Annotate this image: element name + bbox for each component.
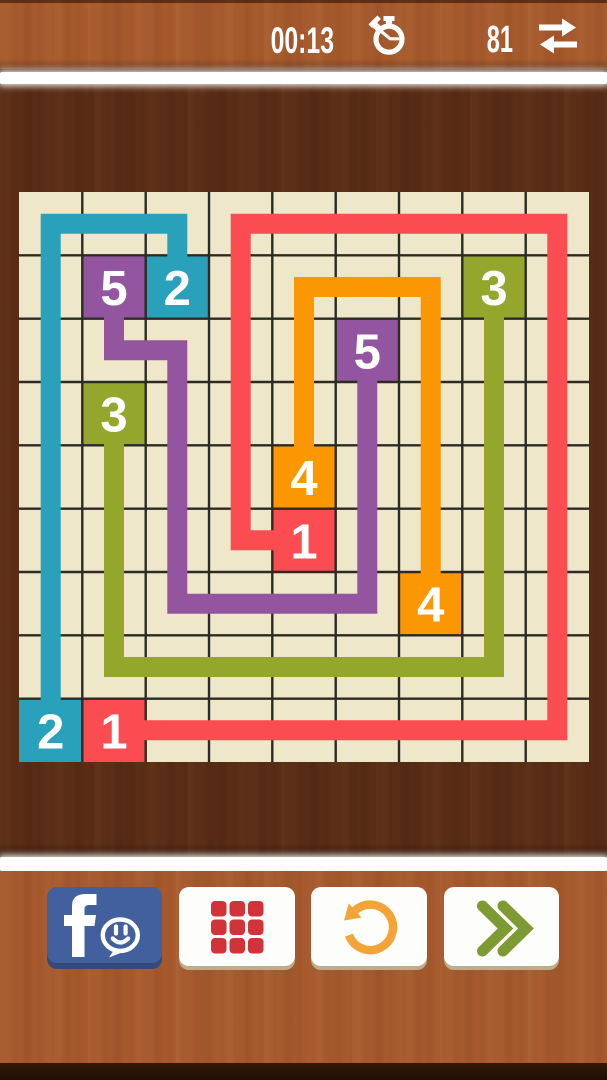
svg-text:2: 2 bbox=[163, 261, 190, 315]
svg-text:4: 4 bbox=[290, 452, 317, 506]
svg-text:4: 4 bbox=[417, 578, 444, 632]
svg-text:5: 5 bbox=[100, 261, 127, 315]
svg-text:3: 3 bbox=[480, 261, 507, 315]
svg-text:2: 2 bbox=[37, 705, 64, 759]
svg-text:5: 5 bbox=[353, 325, 380, 379]
svg-text:1: 1 bbox=[100, 705, 127, 759]
svg-text:1: 1 bbox=[290, 515, 317, 569]
svg-text:3: 3 bbox=[100, 388, 127, 442]
